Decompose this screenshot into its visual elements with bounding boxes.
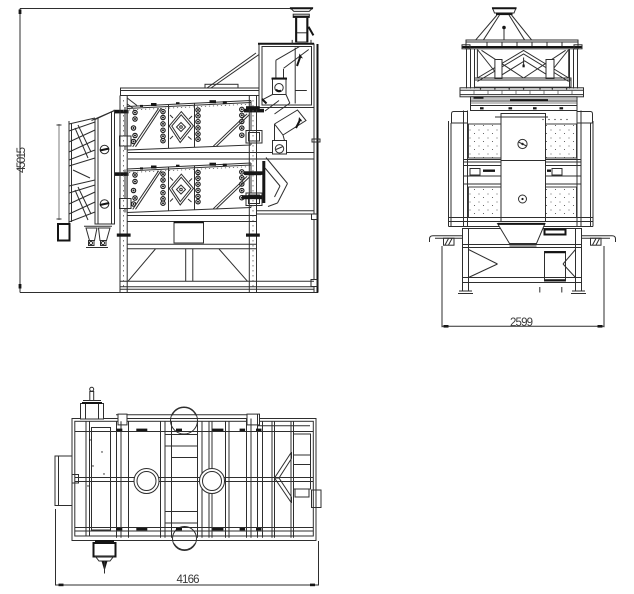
svg-text:2599: 2599 [510, 317, 533, 329]
svg-text:45015: 45015 [16, 147, 28, 173]
svg-text:4166: 4166 [177, 574, 200, 586]
